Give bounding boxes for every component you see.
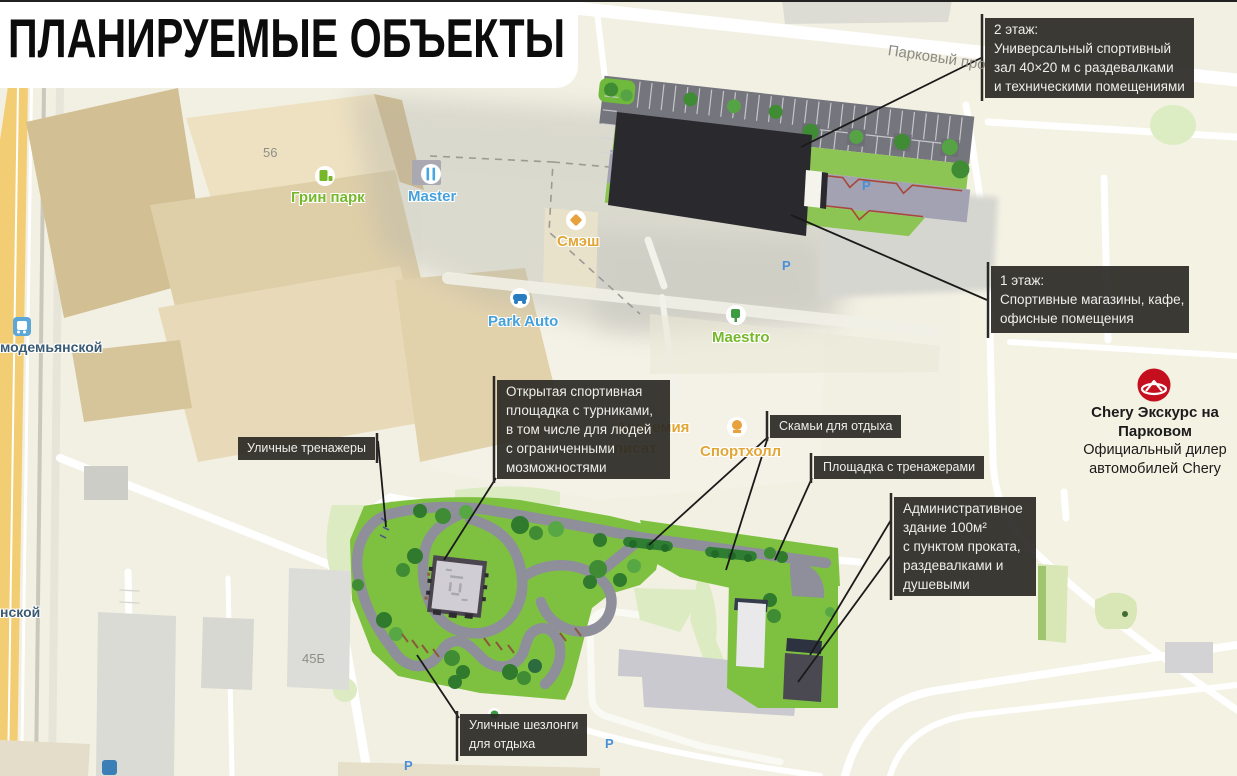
svg-text:P: P: [404, 758, 413, 773]
svg-text:P: P: [862, 178, 871, 193]
svg-text:P: P: [605, 736, 614, 751]
svg-text:P: P: [782, 258, 791, 273]
